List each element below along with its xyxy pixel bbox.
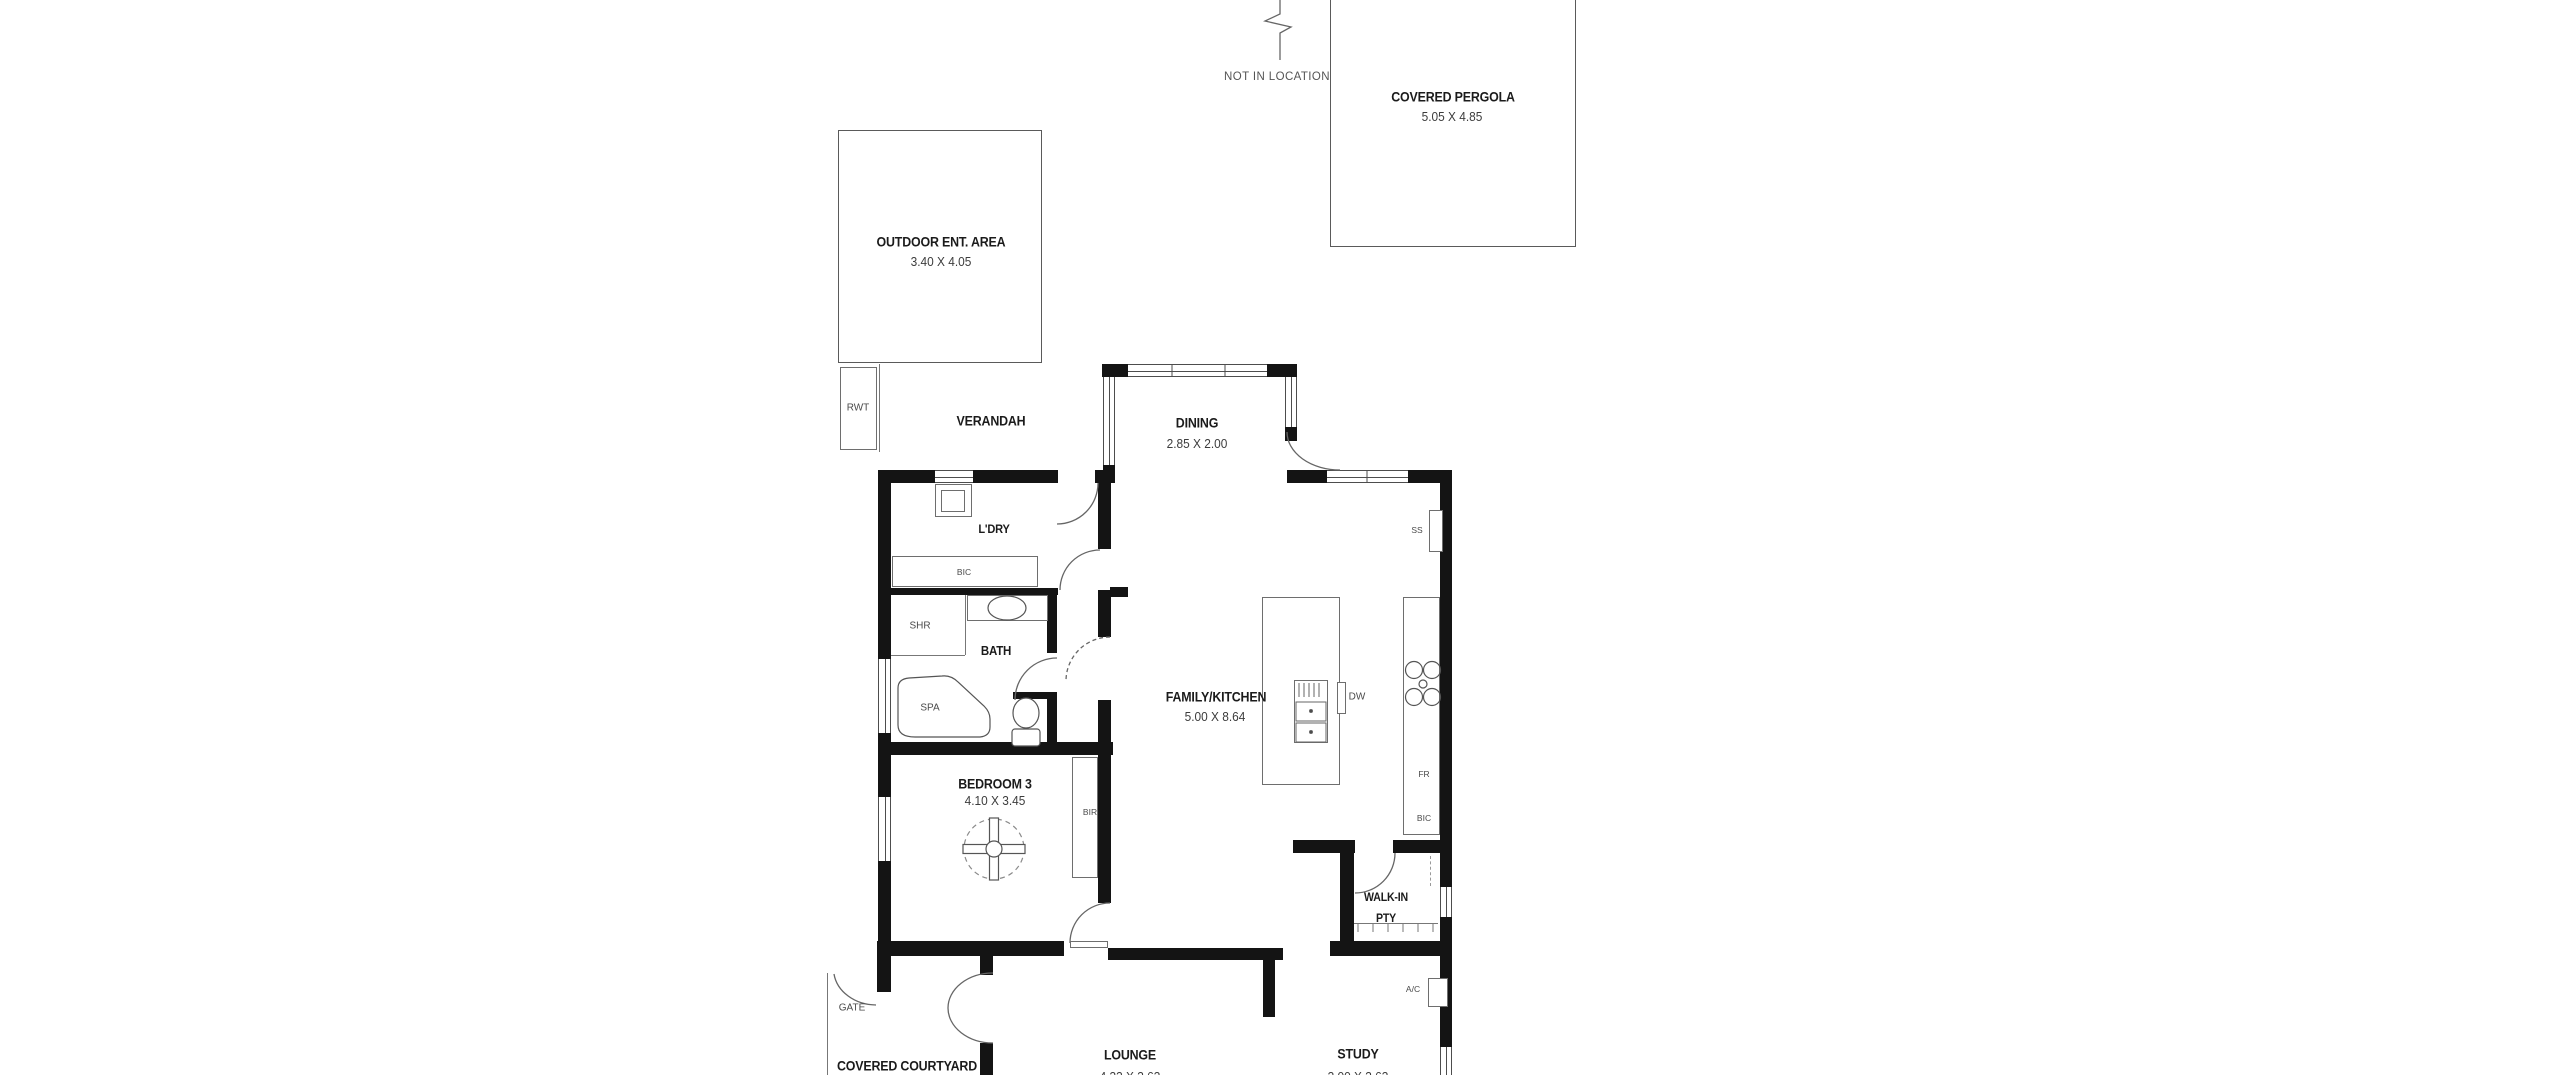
door-arc [1287, 432, 1340, 470]
ceiling-fan-icon [963, 818, 1025, 880]
toilet-icon [1012, 698, 1040, 746]
lounge-label: LOUNGE [1104, 1048, 1156, 1063]
floorplan-canvas: NOT IN LOCATION COVERED PERGOLA 5.05 X 4… [0, 0, 2560, 1075]
spa-label: SPA [920, 703, 939, 714]
bic-kitchen-label: BIC [1417, 813, 1431, 823]
not-in-location-label: NOT IN LOCATION [1224, 71, 1330, 83]
toilet-cistern [1012, 729, 1040, 746]
lounge-dims: 4.33 X 3.63 [1100, 1070, 1161, 1075]
gate-label: GATE [839, 1003, 865, 1014]
dining-dims: 2.85 X 2.00 [1167, 437, 1228, 451]
island-drawers [1296, 702, 1326, 742]
door-arc-dashed [1066, 637, 1110, 681]
french-door-arc [948, 1008, 993, 1043]
basin-icon [988, 596, 1026, 620]
door-arc [1057, 483, 1098, 524]
verandah-label: VERANDAH [957, 414, 1026, 429]
bir-label: BIR [1083, 807, 1097, 817]
bedroom3-dims: 4.10 X 3.45 [965, 794, 1026, 808]
drawer-knob [1310, 731, 1313, 734]
french-door-arc [948, 973, 993, 1008]
plan-symbols-layer [0, 0, 2560, 1075]
covered-courtyard-label: COVERED COURTYARD [837, 1059, 977, 1074]
cooktop-icon [1406, 662, 1441, 706]
door-arc [1015, 658, 1057, 700]
spa-bath-icon [898, 676, 990, 737]
walkin-pantry-label-2: PTY [1376, 913, 1396, 925]
ss-label: SS [1411, 525, 1422, 535]
burner [1424, 689, 1441, 706]
dining-label: DINING [1176, 416, 1218, 431]
ac-label: A/C [1406, 984, 1420, 994]
drawer-knob [1310, 710, 1313, 713]
family-kitchen-label: FAMILY/KITCHEN [1166, 690, 1266, 705]
covered-pergola-dims: 5.05 X 4.85 [1422, 110, 1483, 124]
rwt-label: RWT [847, 403, 870, 414]
door-arc [1070, 903, 1110, 943]
burner [1406, 689, 1423, 706]
study-dims: 3.00 X 3.63 [1328, 1070, 1389, 1075]
bic-laundry-label: BIC [957, 567, 971, 577]
ac-unit-box [1428, 978, 1448, 1007]
outdoor-ent-label: OUTDOOR ENT. AREA [877, 235, 1006, 250]
study-label: STUDY [1337, 1047, 1378, 1062]
rear-door-leaf [1070, 941, 1108, 948]
outdoor-ent-dims: 3.40 X 4.05 [911, 255, 972, 269]
bedroom3-label: BEDROOM 3 [958, 777, 1032, 792]
fr-label: FR [1418, 769, 1429, 779]
shower-label: SHR [909, 621, 930, 632]
gate-arc [834, 974, 876, 1005]
door-arc [1060, 550, 1100, 590]
covered-pergola-label: COVERED PERGOLA [1391, 90, 1515, 105]
family-kitchen-dims: 5.00 X 8.64 [1185, 710, 1246, 724]
burner [1406, 662, 1423, 679]
walkin-pantry-label-1: WALK-IN [1364, 892, 1408, 904]
burner [1424, 662, 1441, 679]
bath-label: BATH [981, 644, 1011, 658]
door-arc [1355, 853, 1395, 893]
break-line-symbol [1265, 0, 1291, 60]
fan-hub [986, 841, 1002, 857]
burner-knob [1419, 680, 1427, 688]
laundry-label: L'DRY [978, 522, 1009, 536]
dw-label: DW [1349, 692, 1366, 703]
island-sink-grill [1299, 683, 1319, 697]
toilet-bowl [1013, 698, 1039, 728]
